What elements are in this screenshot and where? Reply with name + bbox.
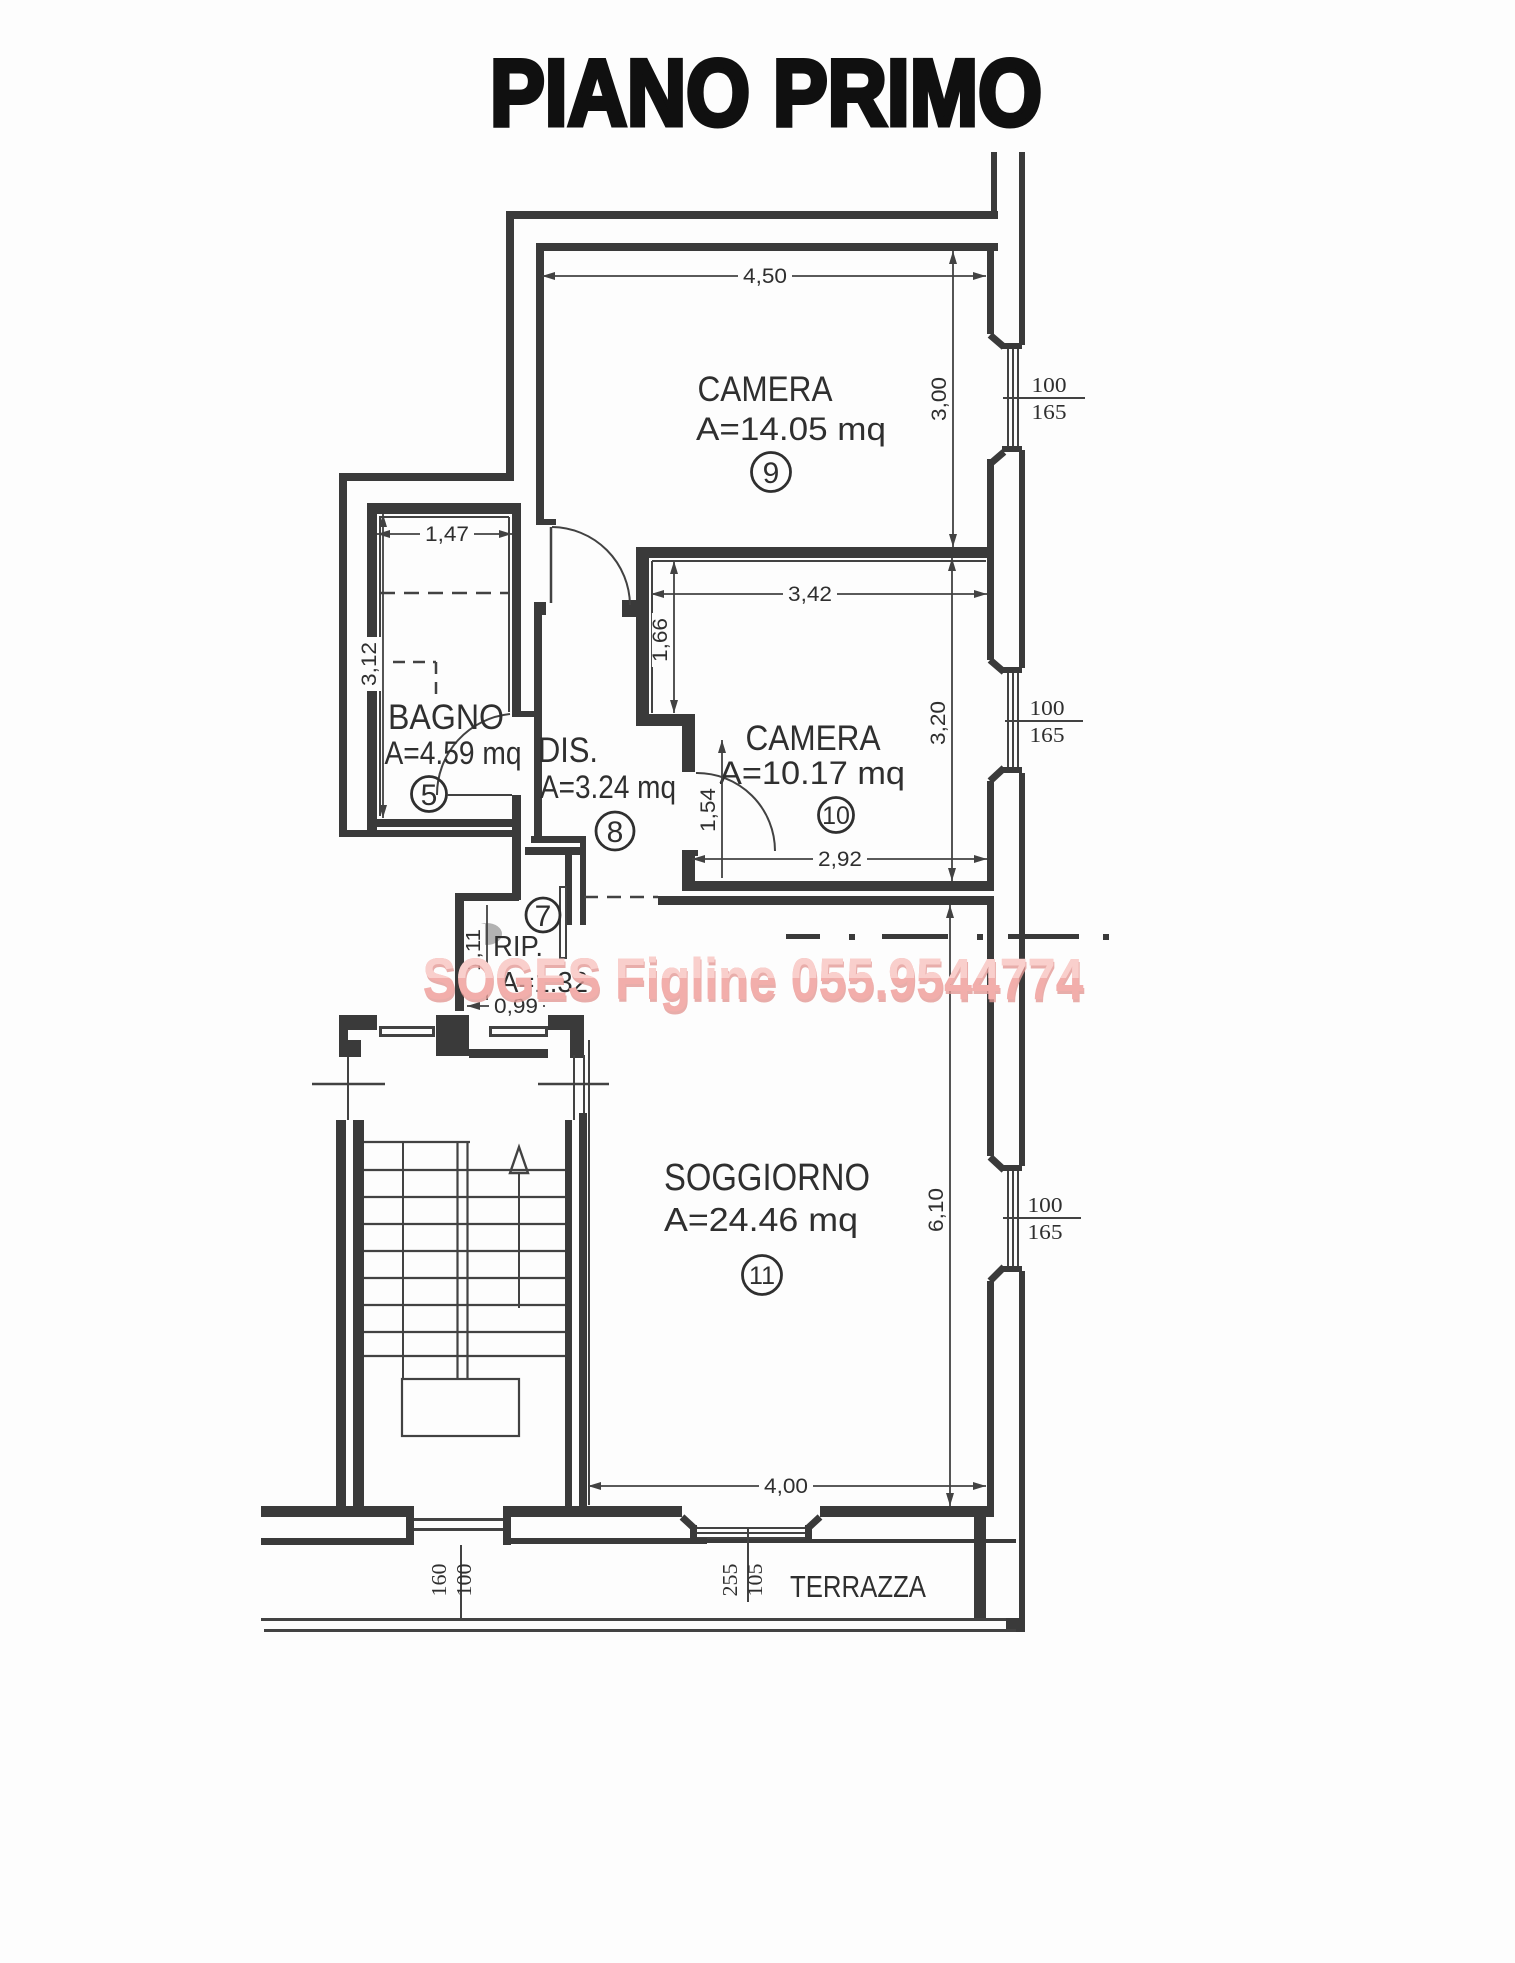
svg-text:165: 165	[1030, 723, 1065, 747]
svg-text:6,10: 6,10	[925, 1188, 948, 1232]
svg-text:BAGNO: BAGNO	[388, 698, 504, 737]
svg-text:2,92: 2,92	[818, 848, 862, 871]
svg-text:100: 100	[1030, 696, 1065, 720]
svg-text:3,12: 3,12	[358, 642, 381, 686]
svg-text:A=14.05 mq: A=14.05 mq	[696, 411, 886, 447]
svg-text:DIS.: DIS.	[538, 731, 598, 770]
svg-text:4,50: 4,50	[743, 265, 787, 288]
svg-text:9: 9	[763, 457, 780, 490]
svg-text:3,42: 3,42	[788, 583, 832, 606]
svg-text:CAMERA: CAMERA	[698, 370, 834, 409]
svg-text:255: 255	[718, 1564, 742, 1597]
svg-text:A=3.24 mq: A=3.24 mq	[540, 769, 676, 805]
svg-text:PIANO PRIMO: PIANO PRIMO	[490, 40, 1042, 145]
svg-text:1,54: 1,54	[697, 788, 720, 832]
svg-text:105: 105	[743, 1564, 767, 1597]
svg-text:160: 160	[427, 1564, 451, 1597]
svg-text:1,66: 1,66	[649, 618, 672, 662]
svg-text:100: 100	[1032, 373, 1067, 397]
svg-text:100: 100	[452, 1564, 476, 1597]
svg-text:7: 7	[535, 900, 552, 933]
svg-text:3,00: 3,00	[928, 377, 951, 421]
svg-text:A=4.59 mq: A=4.59 mq	[385, 735, 522, 771]
svg-text:165: 165	[1032, 400, 1067, 424]
svg-text:A=24.46 mq: A=24.46 mq	[664, 1201, 858, 1238]
svg-text:165: 165	[1028, 1220, 1063, 1244]
svg-text:SOGGIORNO: SOGGIORNO	[664, 1157, 870, 1199]
svg-text:5: 5	[421, 779, 438, 812]
svg-text:TERRAZZA: TERRAZZA	[790, 1569, 926, 1604]
svg-text:100: 100	[1028, 1193, 1063, 1217]
svg-text:4,00: 4,00	[764, 1475, 808, 1498]
svg-text:10: 10	[822, 802, 850, 830]
svg-text:A=10.17 mq: A=10.17 mq	[719, 755, 905, 791]
svg-text:CAMERA: CAMERA	[746, 719, 882, 758]
svg-text:8: 8	[607, 816, 624, 849]
svg-text:3,20: 3,20	[927, 701, 950, 745]
svg-text:11: 11	[749, 1262, 775, 1290]
svg-text:1,47: 1,47	[425, 523, 469, 546]
